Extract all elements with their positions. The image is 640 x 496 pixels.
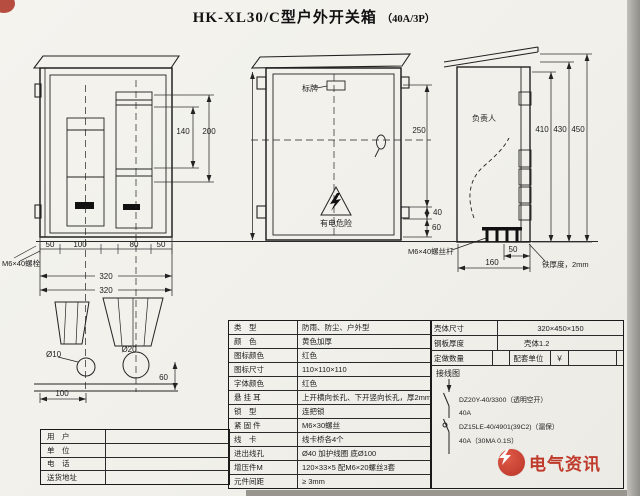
door-lock	[377, 135, 386, 149]
table-row: 钢板厚度 壳体1.2	[431, 335, 623, 350]
table-row: 电 话	[41, 457, 229, 471]
nameplate-label: 标牌	[302, 83, 318, 93]
bolt-note-left: M6×40螺栓	[2, 258, 41, 268]
shell-size-label: 壳体尺寸	[431, 321, 498, 335]
customer-label: 单 位	[41, 444, 106, 457]
table-row: 定做数量 配套单位 ￥	[431, 350, 623, 365]
customer-table: 用 户 单 位 电 话 送货地址	[40, 429, 230, 485]
spec-value: M6×30螺丝	[298, 419, 431, 432]
cable-gland	[55, 302, 89, 344]
hinge	[257, 77, 266, 89]
spec-label: 增压件M	[229, 461, 298, 474]
spec-value: 红色	[298, 377, 431, 390]
customer-label: 送货地址	[41, 471, 106, 484]
table-row: 字体颜色红色	[229, 376, 431, 390]
person-label: 负责人	[472, 113, 496, 123]
table-row: 类 型防雨、防尘、户外型	[229, 321, 431, 334]
blank-cell	[617, 351, 623, 365]
drawing-sheet: HK-XL30/C型户外开关箱 （40A/3P）	[0, 0, 640, 496]
customer-label: 电 话	[41, 458, 106, 471]
front-closed-view	[251, 54, 431, 240]
hole-label-d10: Ø10	[46, 350, 62, 359]
table-row: 增压件M120×33×5 配M6×20螺丝3套	[229, 460, 431, 474]
front-open-view	[34, 56, 179, 392]
bolt-note-side: M6×40螺丝杆	[408, 246, 454, 256]
dim-410: 410	[535, 125, 549, 134]
spec-label: 图标颜色	[229, 349, 298, 362]
spec-table: 类 型防雨、防尘、户外型 颜 色黄色加厚 图标颜色红色 图标尺寸110×110×…	[228, 320, 432, 489]
customer-label: 用 户	[41, 430, 106, 443]
table-row: 图标颜色红色	[229, 348, 431, 362]
hole-d10	[77, 358, 95, 376]
side-view-dims	[458, 54, 592, 272]
side-view	[444, 47, 545, 261]
table-row: 元件间距≥ 3mm	[229, 474, 431, 488]
watermark-text: 电气资讯	[529, 450, 601, 475]
customer-value	[106, 430, 229, 443]
spec-value: 上开横向长孔、下开竖向长孔，厚2mm	[298, 391, 431, 404]
table-row: 紧 固 件M6×30螺丝	[229, 418, 431, 432]
photo-edge-right	[627, 0, 640, 496]
plate-thickness-label: 钢板厚度	[431, 336, 498, 350]
dim-450: 450	[571, 125, 585, 134]
table-row: 悬 挂 耳上开横向长孔、下开竖向长孔，厚2mm	[229, 390, 431, 404]
dim-60-base: 60	[159, 373, 168, 382]
spec-value: 连把锁	[298, 405, 431, 418]
hole-label-d20: Ø20	[121, 345, 137, 354]
table-row: 送货地址	[41, 470, 229, 484]
front-closed-dims	[403, 85, 432, 237]
breaker2-model: DZ15LE-40/4901(39C2)（漏保）	[459, 422, 559, 431]
table-row: 图标尺寸110×110×110	[229, 362, 431, 376]
table-row: 颜 色黄色加厚	[229, 334, 431, 348]
dim-50-side: 50	[509, 245, 518, 254]
dim-100: 100	[73, 240, 87, 249]
customer-value	[106, 458, 229, 471]
watermark-logo-icon	[498, 449, 525, 476]
spec-label: 颜 色	[229, 335, 298, 348]
rain-hood	[34, 56, 179, 68]
dim-50-left: 50	[46, 240, 55, 249]
table-row: 用 户	[41, 430, 229, 443]
breaker-block	[75, 202, 94, 209]
table-row: 线 卡线卡桥各4个	[229, 432, 431, 446]
latch-tab	[401, 77, 409, 88]
dim-60: 60	[432, 223, 441, 232]
customer-value	[106, 444, 229, 457]
dim-250: 250	[412, 126, 426, 135]
base-view	[34, 298, 178, 391]
spec-value: 防雨、防尘、户外型	[298, 321, 431, 334]
latch-tab	[401, 207, 409, 218]
spec-value: 红色	[298, 349, 431, 362]
spec-value: 线卡桥各4个	[298, 433, 431, 446]
spec-label: 图标尺寸	[229, 363, 298, 376]
breaker2-current: 40A（30MA 0.1S）	[459, 437, 518, 445]
spec-value: 120×33×5 配M6×20螺丝3套	[298, 461, 431, 474]
dim-40: 40	[433, 208, 442, 217]
spec-value: 黄色加厚	[298, 335, 431, 348]
spec-label: 元件间距	[229, 475, 298, 488]
spec-label: 字体颜色	[229, 377, 298, 390]
thickness-note: 铁厚度，2mm	[542, 259, 589, 269]
table-row: 进出线孔Ø40 加护线圈 底Ø100	[229, 446, 431, 460]
unit-value: ￥	[551, 351, 570, 365]
dim-50-right: 50	[157, 240, 166, 249]
breaker1-model: DZ20Y-40/3300（透明空开）	[459, 395, 547, 404]
customer-value	[106, 471, 229, 484]
spec-value: Ø40 加护线圈 底Ø100	[298, 447, 431, 460]
dim-320-width-2: 320	[99, 286, 113, 295]
nameplate	[327, 81, 345, 90]
front-open-dims	[14, 95, 214, 296]
anchor-bolts	[482, 227, 522, 242]
qty-value	[493, 351, 510, 365]
shell-size-value: 320×450×150	[498, 321, 623, 335]
spec-label: 紧 固 件	[229, 419, 298, 432]
spec-value: 110×110×110	[298, 363, 431, 376]
warning-label: 有电危险	[320, 218, 352, 228]
spec-label: 进出线孔	[229, 447, 298, 460]
table-row: 锁 型连把锁	[229, 404, 431, 418]
watermark: 电气资讯	[498, 449, 601, 476]
dim-320-width: 320	[99, 272, 113, 281]
breaker1-current: 40A	[459, 410, 472, 417]
spec-label: 类 型	[229, 321, 298, 334]
dim-140: 140	[176, 127, 190, 136]
qty-label: 定做数量	[431, 351, 493, 365]
dim-80: 80	[130, 240, 139, 249]
rain-hood	[252, 54, 410, 68]
table-row: 单 位	[41, 443, 229, 457]
photo-edge-bottom	[246, 490, 627, 496]
cabinet-outline	[266, 68, 401, 240]
spec-label: 锁 型	[229, 405, 298, 418]
plate-thickness-value: 壳体1.2	[498, 336, 623, 350]
unit-label: 配套单位	[510, 351, 550, 365]
dim-160-side: 160	[485, 258, 499, 267]
dim-430: 430	[553, 125, 567, 134]
spec-label: 线 卡	[229, 433, 298, 446]
dim-100-base: 100	[55, 389, 69, 398]
spec-value: ≥ 3mm	[298, 475, 431, 488]
table-row: 壳体尺寸 320×450×150	[431, 321, 623, 335]
dim-200: 200	[202, 127, 216, 136]
hinge	[257, 206, 266, 218]
cable-curve	[470, 138, 509, 218]
breaker-block	[123, 204, 140, 210]
blank-cell	[569, 351, 617, 365]
spec-label: 悬 挂 耳	[229, 391, 298, 404]
